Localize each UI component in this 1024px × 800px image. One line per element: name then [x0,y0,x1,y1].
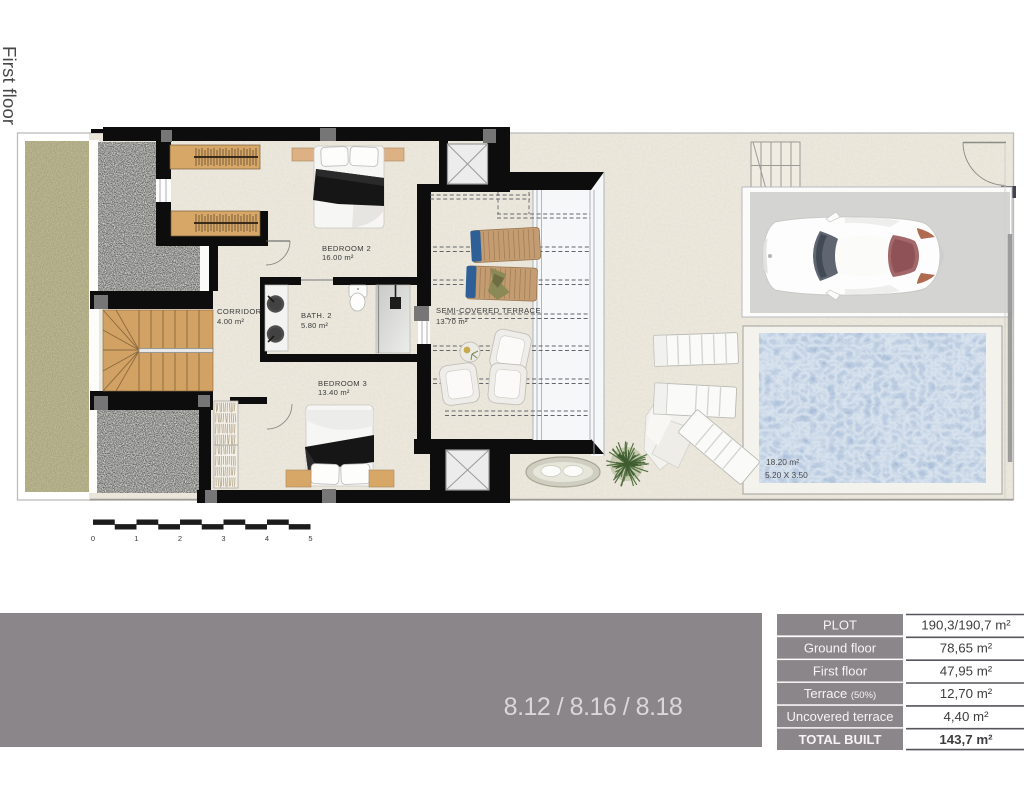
svg-text:8.12 / 8.16 / 8.18: 8.12 / 8.16 / 8.18 [504,693,683,721]
svg-text:13.40 m²: 13.40 m² [318,388,350,397]
svg-text:First floor: First floor [813,663,868,678]
svg-text:18.20 m²: 18.20 m² [766,457,799,467]
svg-text:First floor: First floor [0,46,20,125]
svg-text:0: 0 [91,534,95,543]
svg-text:CORRIDOR: CORRIDOR [217,307,262,316]
svg-text:78,65 m²: 78,65 m² [940,641,993,656]
svg-text:3: 3 [221,534,225,543]
svg-text:BEDROOM 3: BEDROOM 3 [318,379,367,388]
svg-text:5.80 m²: 5.80 m² [301,321,328,330]
svg-text:16.00 m²: 16.00 m² [322,253,354,262]
svg-text:143,7 m²: 143,7 m² [939,732,993,747]
svg-text:5: 5 [308,534,312,543]
svg-text:4.00 m²: 4.00 m² [217,317,244,326]
svg-text:4,40 m²: 4,40 m² [943,709,989,724]
svg-text:BATH. 2: BATH. 2 [301,311,332,320]
svg-text:Uncovered terrace: Uncovered terrace [787,709,894,724]
svg-text:47,95 m²: 47,95 m² [940,663,993,678]
svg-text:13.70 m²: 13.70 m² [436,317,468,326]
svg-text:2: 2 [178,534,182,543]
svg-text:BEDROOM 2: BEDROOM 2 [322,244,371,253]
svg-text:SEMI-COVERED TERRACE: SEMI-COVERED TERRACE [436,306,541,315]
svg-text:5.20 X 3.50: 5.20 X 3.50 [765,470,808,480]
svg-text:12,70 m²: 12,70 m² [940,686,993,701]
svg-text:4: 4 [265,534,269,543]
svg-text:190,3/190,7 m²: 190,3/190,7 m² [921,618,1011,633]
svg-text:TOTAL BUILT: TOTAL BUILT [799,732,882,747]
svg-text:1: 1 [134,534,138,543]
svg-text:PLOT: PLOT [823,618,857,633]
svg-text:Ground floor: Ground floor [804,641,877,656]
